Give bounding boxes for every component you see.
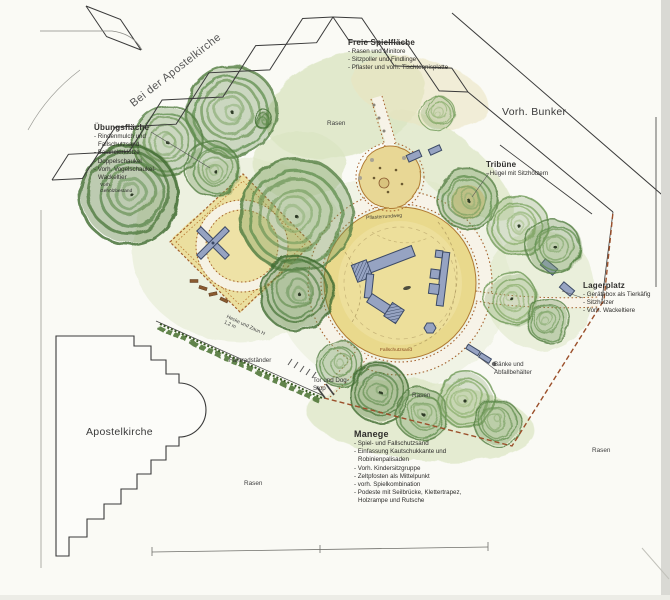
- tree: [474, 398, 521, 446]
- balance-log: [190, 280, 198, 283]
- play-equipment: [428, 283, 439, 294]
- play-equipment: [435, 250, 443, 258]
- site-plan-drawing: [0, 0, 670, 600]
- tree: [526, 219, 582, 274]
- site-plan-page: Bei der Apostelkirche Freie Spielfläche …: [0, 0, 670, 600]
- tree: [239, 159, 352, 271]
- tree: [260, 255, 334, 330]
- tree: [525, 298, 570, 342]
- play-equipment: [430, 269, 440, 279]
- tree: [253, 109, 272, 129]
